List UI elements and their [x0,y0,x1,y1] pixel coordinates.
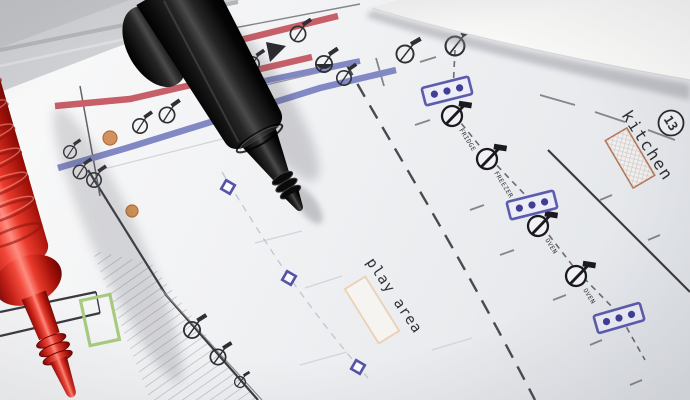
vignette [0,0,690,400]
photo-canvas: FRIDGE FREEZER OVEN OVEN kitchen [0,0,690,400]
photo-of-blueprint-with-probes: FRIDGE FREEZER OVEN OVEN kitchen [0,0,690,400]
